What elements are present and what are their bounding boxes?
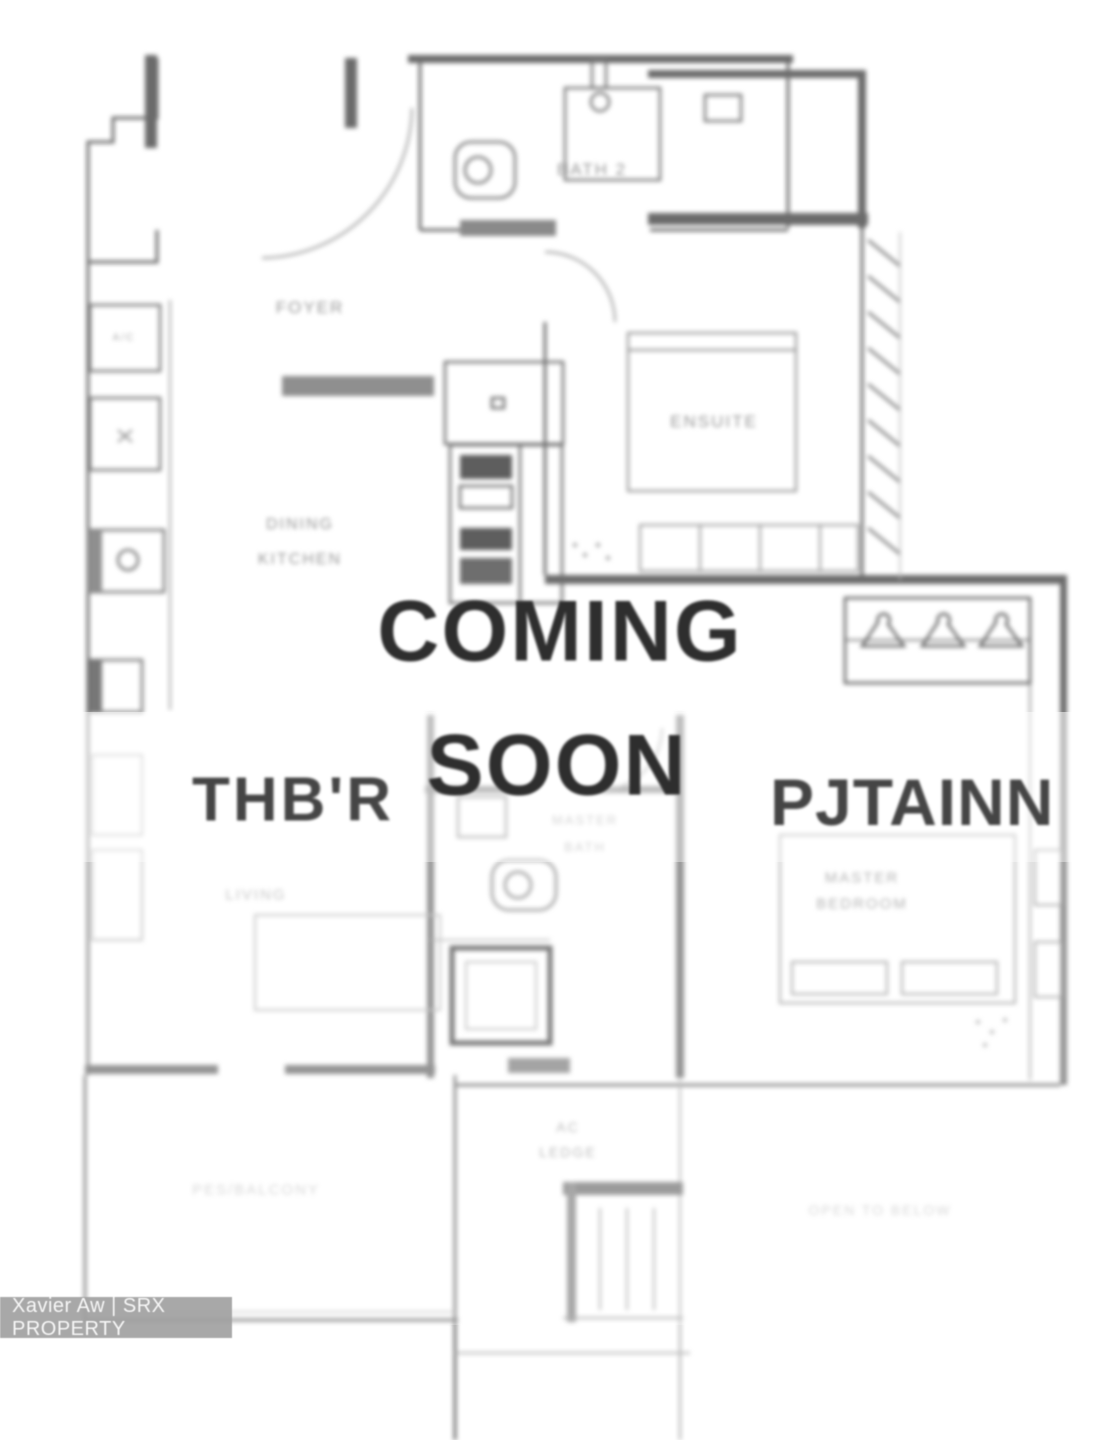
room-label-ensuite: ENSUITE — [670, 412, 758, 432]
room-label-balcony: PES/BALCONY — [192, 1182, 320, 1199]
room-label-master-bedroom-1: MASTER — [825, 870, 900, 887]
utility-fixtures — [88, 305, 164, 712]
room-label-open-to-below: OPEN TO BELOW — [809, 1202, 952, 1218]
watermark-right-text: PJTAINN — [770, 764, 1054, 840]
master-bedroom-fixtures — [780, 835, 1061, 1047]
hanger-icon — [862, 614, 1022, 646]
ensuite-fixtures — [573, 333, 858, 571]
wall-hatching — [868, 232, 900, 580]
agent-watermark-badge: Xavier Aw | SRX PROPERTY — [0, 1297, 232, 1338]
wardrobe-hangers — [845, 598, 1030, 683]
watermark-left-text: THB'R — [192, 765, 394, 836]
room-label-master-bedroom-2: BEDROOM — [816, 896, 908, 913]
door-arcs — [262, 108, 662, 790]
ladder — [563, 1182, 683, 1322]
floorplan-screenshot: BATH 2 FOYER ENSUITE DINING KITCHEN A/C … — [0, 0, 1108, 1440]
coming-soon-line1: COMING — [377, 583, 743, 682]
coming-soon-line2: SOON — [426, 717, 687, 816]
thick-walls — [85, 55, 1067, 1085]
room-label-foyer: FOYER — [276, 298, 345, 318]
bath2-fixtures — [455, 60, 741, 236]
room-label-ac-ledge-1: AC — [556, 1119, 579, 1135]
agent-watermark-text: Xavier Aw | SRX PROPERTY — [0, 1295, 232, 1341]
room-label-dining: DINING — [266, 516, 334, 534]
room-label-living: LIVING — [225, 887, 286, 904]
room-label-kitchen: KITCHEN — [258, 551, 342, 569]
room-label-ac-ledge-2: LEDGE — [539, 1144, 596, 1160]
room-label-ac-unit: A/C — [113, 333, 136, 344]
master-bath-fixtures — [430, 797, 556, 1043]
room-label-bath2: BATH 2 — [557, 160, 627, 180]
room-label-master-bath-2: BATH — [564, 840, 606, 855]
